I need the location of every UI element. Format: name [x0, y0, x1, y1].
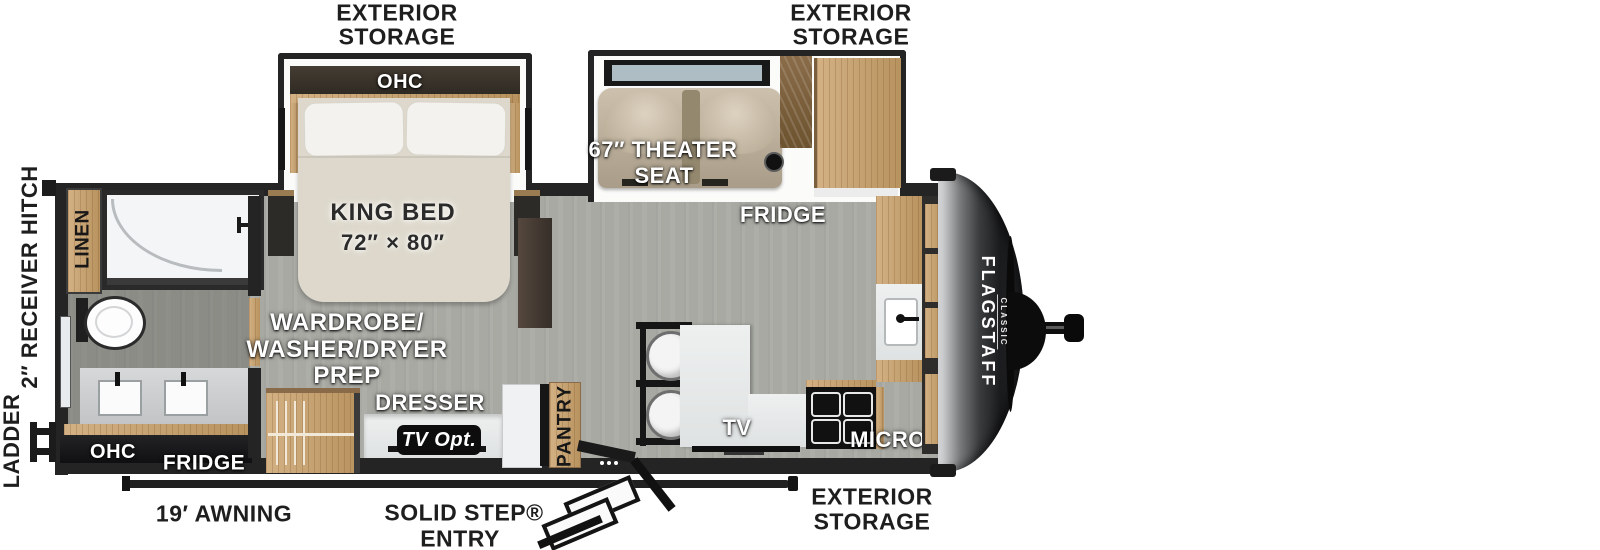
- king-bed-label: KING BED: [330, 201, 455, 225]
- awning-rail: [126, 480, 790, 488]
- wardrobe-edge: [354, 393, 360, 473]
- wardrobe-label1: WARDROBE/: [270, 311, 424, 335]
- toilet: [84, 296, 146, 350]
- ext-storage-top-right-label1: EXTERIOR: [790, 2, 912, 25]
- pantry-edge: [540, 384, 549, 466]
- wardrobe-label3: PREP: [313, 364, 380, 388]
- theater-seat-foot: [702, 179, 728, 186]
- burner-icon: [811, 392, 841, 417]
- faucet-arm: [903, 317, 919, 321]
- kitchen-counter-foot: [748, 394, 810, 447]
- bed-seam: [298, 156, 510, 158]
- mirror: [60, 316, 71, 408]
- ext-storage-top-left-label2: STORAGE: [339, 26, 456, 49]
- front-cap-corner: [930, 168, 956, 181]
- faucet-icon: [181, 372, 186, 386]
- burner-icon: [843, 392, 873, 417]
- ext-storage-top-left-label1: EXTERIOR: [336, 2, 458, 25]
- awning-rail-end-left: [122, 476, 130, 491]
- ext-storage-top-right-label2: STORAGE: [793, 26, 910, 49]
- solid-step-label2: ENTRY: [420, 528, 500, 550]
- door-detail-dot: [614, 461, 618, 465]
- faucet-icon: [115, 372, 120, 386]
- bedroom-window-icon: [279, 108, 285, 170]
- front-counter-lower: [876, 360, 922, 382]
- corner-cabinet: [780, 56, 812, 148]
- front-cap-corner: [930, 464, 956, 477]
- bedroom-wardrobe-cabinet: [518, 218, 552, 328]
- bed-ohc-label: OHC: [377, 72, 423, 92]
- ladder-label: LADDER: [1, 394, 23, 489]
- theater-seat-label2: SEAT: [634, 165, 693, 187]
- theater-seat-label: 67″ THEATER: [589, 139, 738, 161]
- ext-storage-bottom-label1: EXTERIOR: [811, 486, 933, 509]
- exterior-port-icon: [42, 180, 56, 196]
- theater-window-icon: [604, 60, 770, 86]
- nightstand: [268, 190, 294, 256]
- shower: [102, 190, 264, 290]
- fridge-label: FRIDGE: [740, 204, 826, 226]
- door-detail-dot: [600, 461, 604, 465]
- micro-label: MICRO: [850, 429, 926, 451]
- bath-wall-upper: [248, 196, 261, 296]
- hitch-coupler-icon: [1064, 314, 1084, 342]
- vanity-sink: [164, 380, 208, 416]
- pillow: [304, 101, 405, 157]
- kitchen-tv-stand: [724, 452, 764, 455]
- door-detail-dot: [607, 461, 611, 465]
- wardrobe-label2: WASHER/DRYER: [246, 338, 447, 362]
- ext-storage-bottom-label2: STORAGE: [814, 511, 931, 534]
- entry-steps: [536, 480, 666, 550]
- hitch-jack-shaft: [1046, 326, 1066, 329]
- bath-ohc-label: OHC: [90, 442, 136, 462]
- front-counter-upper: [876, 196, 922, 286]
- shower-head-icon: [237, 217, 241, 233]
- pantry-side-cabinet: [502, 384, 542, 468]
- pantry-label: PANTRY: [556, 385, 575, 467]
- receiver-hitch-label: 2″ RECEIVER HITCH: [19, 165, 41, 388]
- tv-label: TV: [722, 417, 751, 439]
- fridge-cabinet: [814, 58, 901, 188]
- pillow: [406, 101, 507, 157]
- stove-wood-trim: [806, 380, 876, 387]
- cupholder-icon: [764, 152, 784, 172]
- king-bed-size-label: 72″ × 80″: [341, 232, 445, 254]
- vanity-wood-edge: [64, 424, 248, 435]
- bedroom-window-icon: [525, 108, 531, 170]
- wardrobe-shelf: [268, 433, 356, 436]
- brand-name: FLAGSTAFF: [979, 256, 997, 389]
- bed-side-column: [509, 103, 520, 173]
- bath-fridge-label: FRIDGE: [163, 453, 245, 474]
- tv-opt-label: TV Opt.: [402, 430, 477, 450]
- awning-label: 19′ AWNING: [156, 503, 292, 526]
- solid-step-label1: SOLID STEP®: [384, 502, 543, 525]
- toilet-bowl-line: [95, 306, 133, 338]
- ladder-rung-icon: [30, 448, 56, 455]
- floorplan-canvas: LINEN OHC FRIDGE OHC KING BED 72″ × 80″: [0, 0, 1600, 550]
- shower-glass-door: [111, 199, 222, 272]
- linen-label: LINEN: [74, 209, 93, 269]
- bath-wall-lower: [248, 368, 261, 458]
- wardrobe: [266, 388, 360, 473]
- dresser-label: DRESSER: [375, 392, 485, 414]
- burner-icon: [811, 419, 841, 444]
- shower-threshold: [107, 278, 259, 285]
- vanity-sink: [98, 380, 142, 416]
- ladder-rung-icon: [30, 428, 56, 435]
- awning-rail-end-right: [788, 476, 798, 491]
- theater-window-glass: [612, 65, 762, 81]
